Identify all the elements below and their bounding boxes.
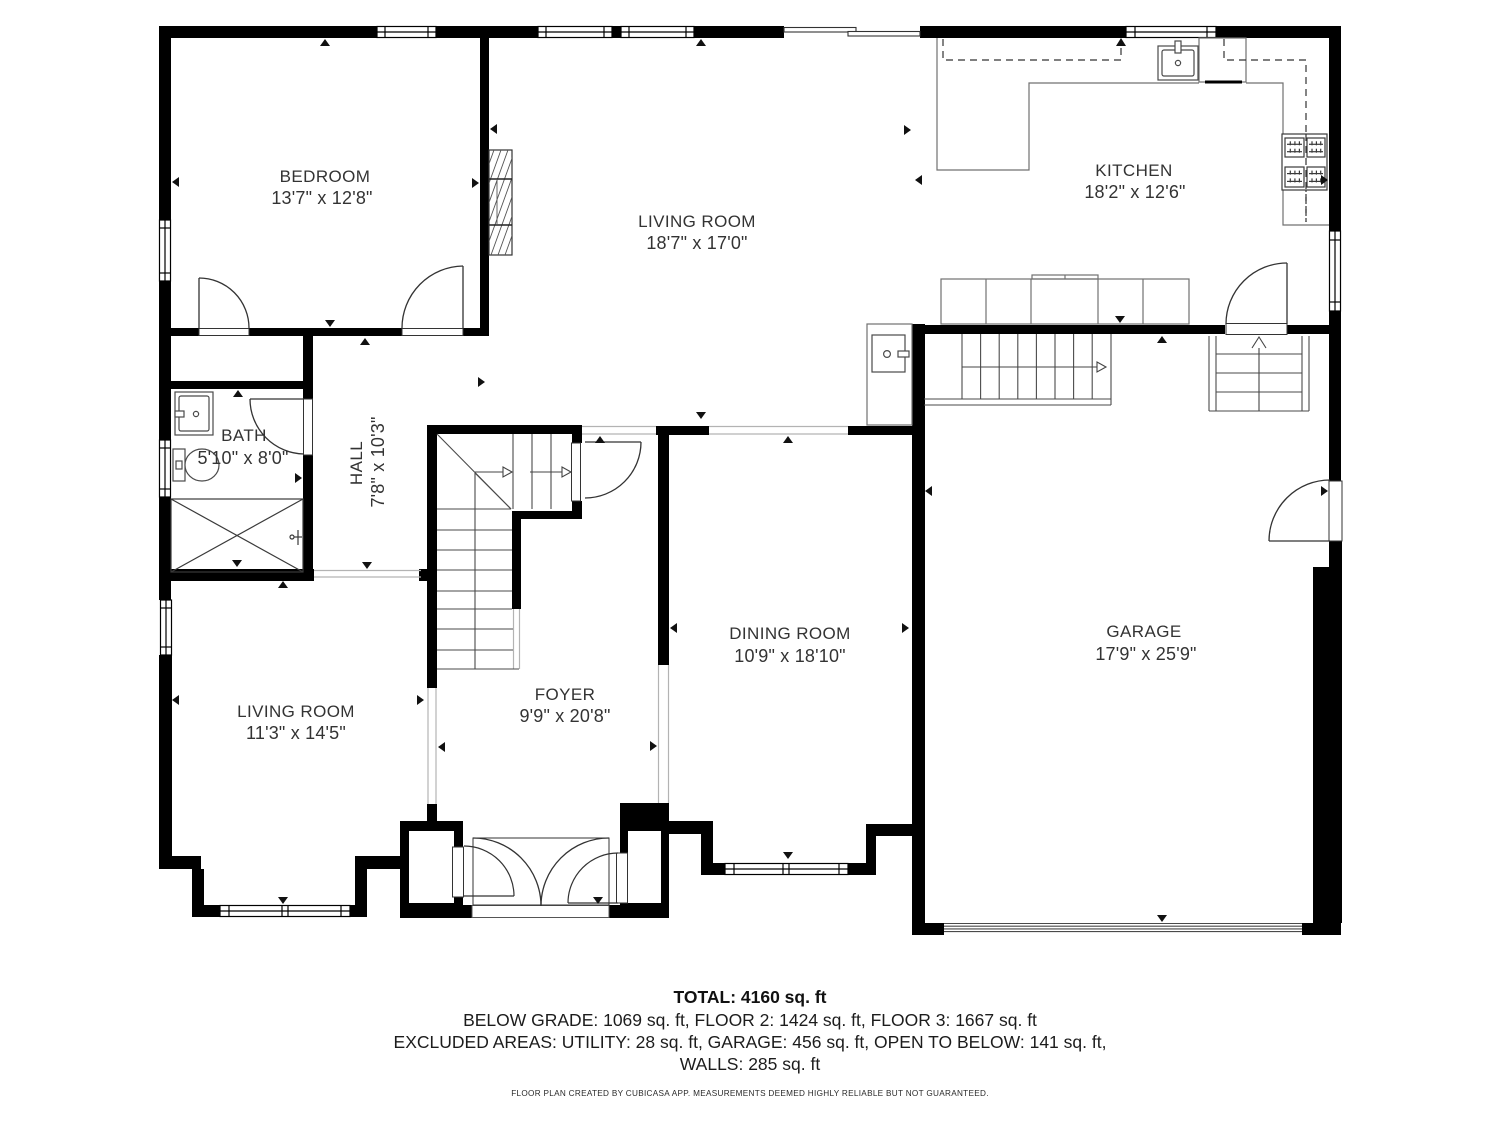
svg-text:9'9" x 20'8": 9'9" x 20'8" [519, 706, 610, 726]
svg-text:FOYER: FOYER [535, 685, 596, 704]
svg-text:WALLS: 285 sq. ft: WALLS: 285 sq. ft [680, 1054, 821, 1074]
svg-text:5'10" x 8'0": 5'10" x 8'0" [197, 448, 288, 468]
svg-text:BATH: BATH [221, 426, 267, 445]
svg-text:TOTAL: 4160 sq. ft: TOTAL: 4160 sq. ft [674, 987, 827, 1007]
svg-text:HALL: HALL [347, 441, 366, 485]
svg-text:18'7" x 17'0": 18'7" x 17'0" [646, 233, 747, 253]
svg-text:LIVING ROOM: LIVING ROOM [638, 212, 756, 231]
svg-text:LIVING ROOM: LIVING ROOM [237, 702, 355, 721]
svg-text:10'9" x 18'10": 10'9" x 18'10" [734, 646, 846, 666]
svg-text:FLOOR PLAN CREATED BY CUBICASA: FLOOR PLAN CREATED BY CUBICASA APP. MEAS… [511, 1089, 989, 1098]
svg-text:17'9" x 25'9": 17'9" x 25'9" [1095, 644, 1196, 664]
svg-text:DINING ROOM: DINING ROOM [729, 624, 851, 643]
svg-text:EXCLUDED AREAS: UTILITY: 28 sq: EXCLUDED AREAS: UTILITY: 28 sq. ft, GARA… [394, 1032, 1107, 1052]
svg-text:13'7" x 12'8": 13'7" x 12'8" [271, 188, 372, 208]
svg-text:7'8" x 10'3": 7'8" x 10'3" [368, 416, 388, 507]
svg-text:GARAGE: GARAGE [1106, 622, 1181, 641]
svg-text:18'2" x 12'6": 18'2" x 12'6" [1084, 182, 1185, 202]
svg-text:BEDROOM: BEDROOM [280, 167, 371, 186]
svg-text:BELOW GRADE: 1069 sq. ft, FLOO: BELOW GRADE: 1069 sq. ft, FLOOR 2: 1424 … [463, 1010, 1037, 1030]
svg-text:11'3" x 14'5": 11'3" x 14'5" [246, 723, 346, 743]
svg-text:KITCHEN: KITCHEN [1095, 161, 1172, 180]
